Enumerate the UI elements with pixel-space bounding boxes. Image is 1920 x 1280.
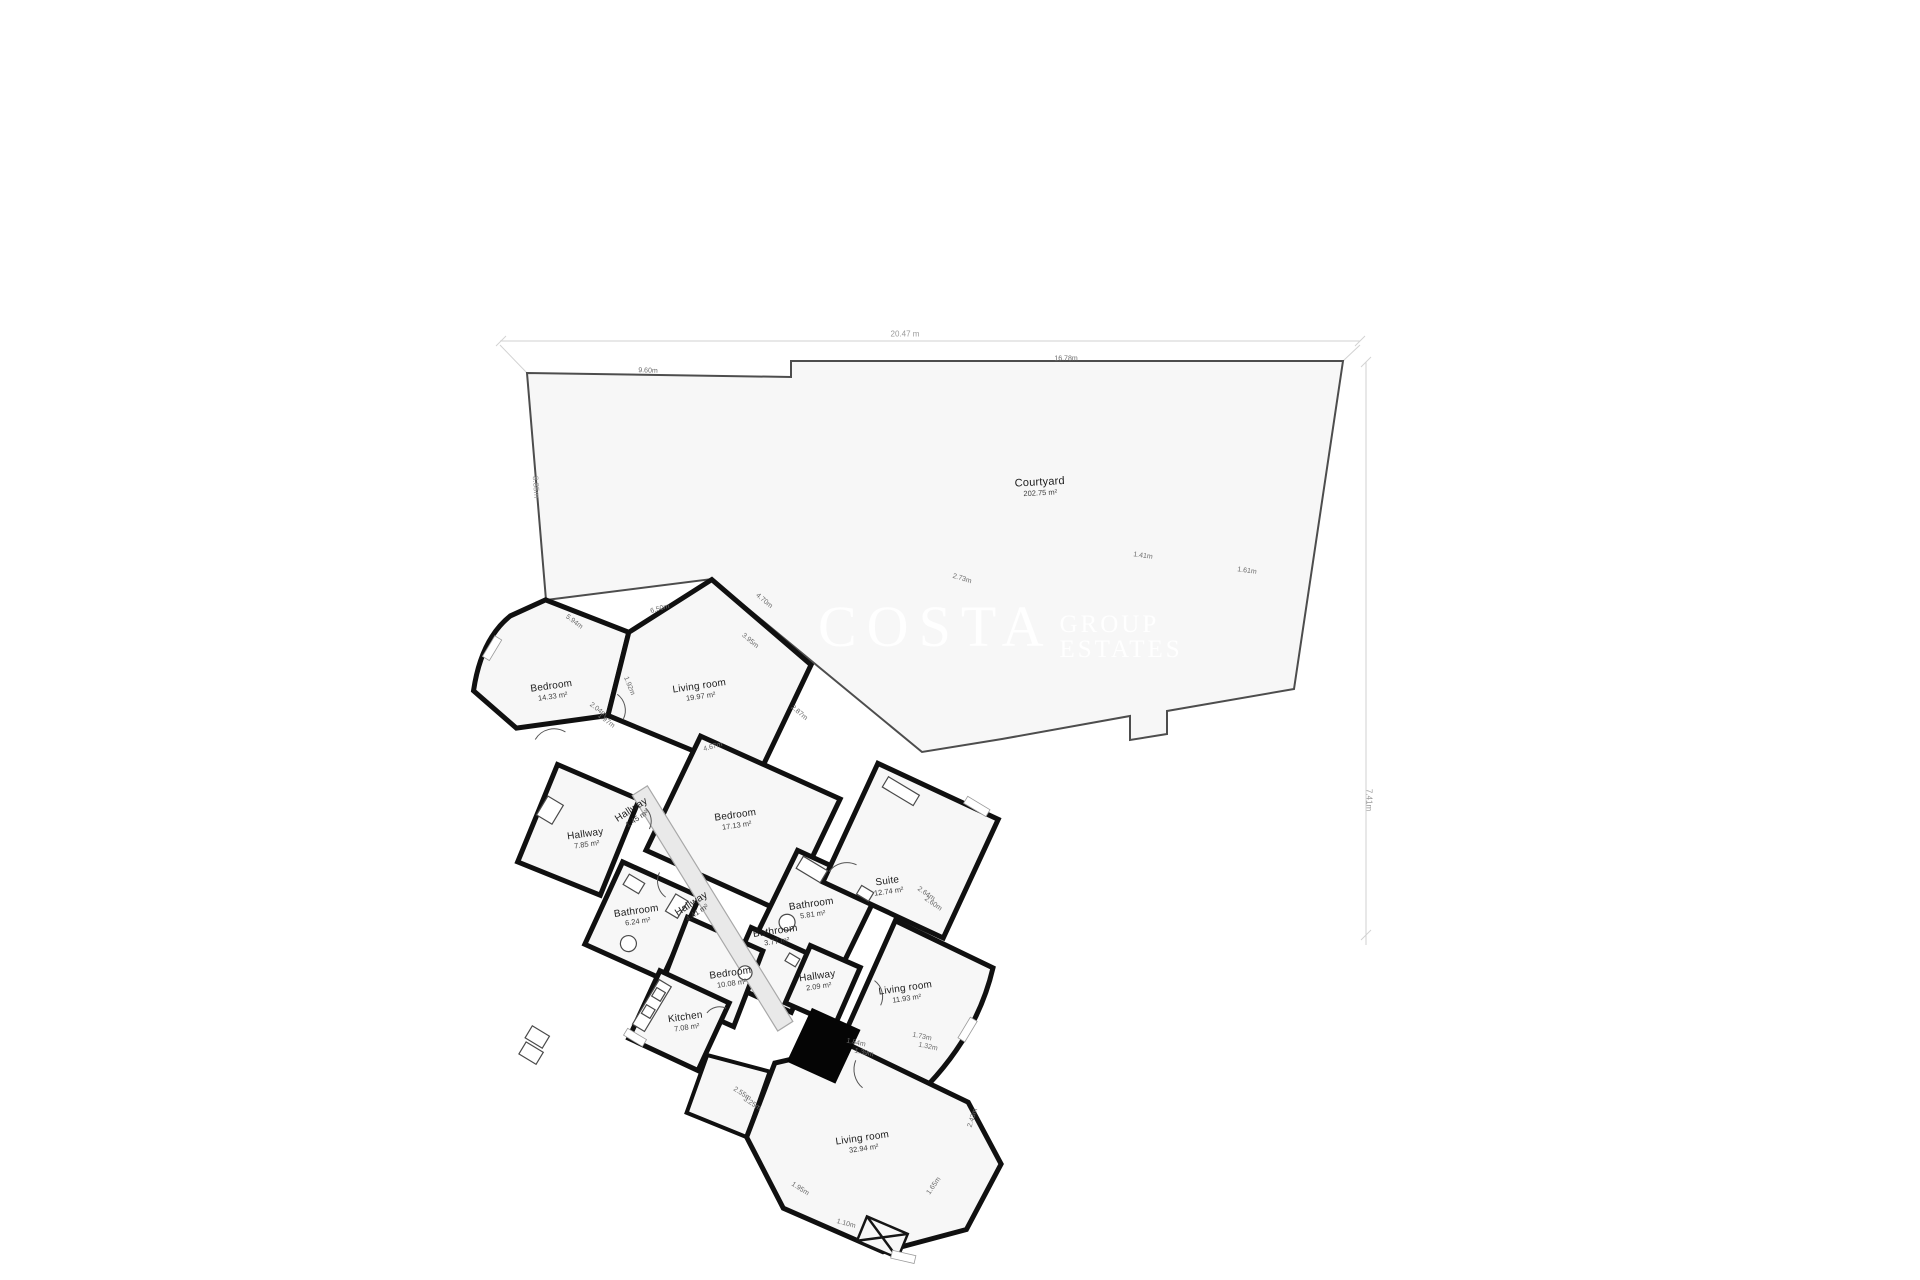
floorplan-drawing xyxy=(0,0,1920,1280)
floorplan-page: COSTA GROUP ESTATES Courtyard202.75 m²Be… xyxy=(0,0,1920,1280)
